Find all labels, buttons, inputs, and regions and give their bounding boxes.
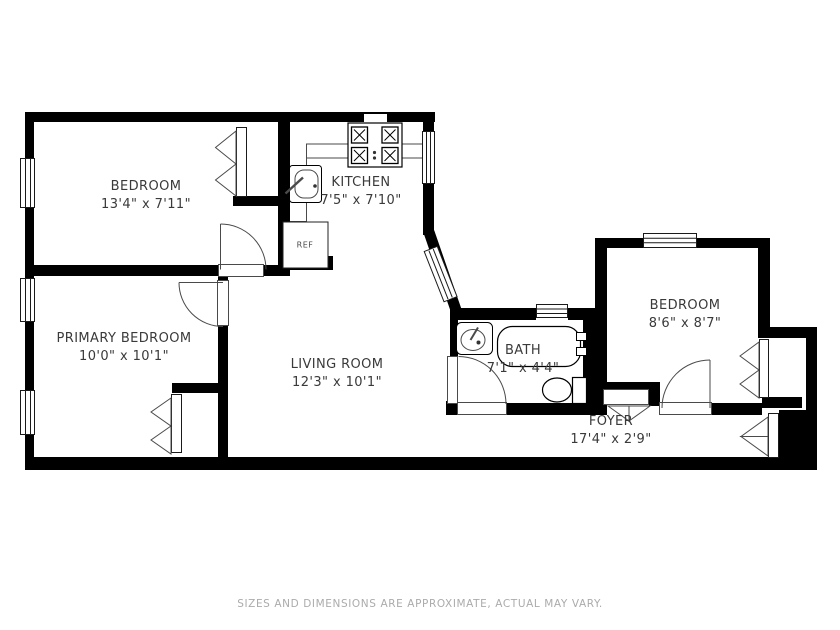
room-dimensions: 17'4" x 2'9" — [570, 431, 651, 449]
stove — [348, 123, 402, 167]
closet-bifold-primary — [151, 395, 182, 455]
room-name: LIVING ROOM — [291, 356, 384, 374]
window-bedroom2-top — [644, 234, 697, 248]
window-bath-top — [537, 305, 568, 318]
room-name: KITCHEN — [320, 174, 401, 192]
door-primary-bedroom — [179, 281, 229, 327]
stove-wall-vent — [364, 114, 387, 122]
room-name: FOYER — [570, 413, 651, 431]
room-name: PRIMARY BEDROOM — [57, 330, 192, 348]
door-bedroom2 — [660, 360, 712, 415]
room-name: BEDROOM — [649, 297, 722, 315]
room-dimensions: 7'1" x 4'4" — [487, 360, 560, 378]
walls — [25, 112, 817, 470]
room-label-bath: BATH 7'1" x 4'4" — [487, 342, 560, 378]
room-dimensions: 10'0" x 10'1" — [57, 348, 192, 366]
entry-door — [741, 414, 779, 458]
closet-bifold-bedroom2 — [740, 340, 769, 399]
room-dimensions: 12'3" x 10'1" — [291, 374, 384, 392]
door-bedroom1 — [219, 224, 267, 277]
room-label-foyer: FOYER 17'4" x 2'9" — [570, 413, 651, 449]
toilet — [543, 378, 587, 404]
room-label-living-room: LIVING ROOM 12'3" x 10'1" — [291, 356, 384, 392]
window-bedroom1-left — [21, 159, 35, 208]
window-angled — [424, 246, 457, 301]
room-name: BATH — [487, 342, 560, 360]
window-kitchen-right — [423, 132, 435, 184]
room-dimensions: 13'4" x 7'11" — [101, 196, 191, 214]
room-label-kitchen: KITCHEN 7'5" x 7'10" — [320, 174, 401, 210]
doors — [151, 128, 779, 458]
disclaimer-text: SIZES AND DIMENSIONS ARE APPROXIMATE, AC… — [237, 598, 603, 610]
room-dimensions: 8'6" x 8'7" — [649, 315, 722, 333]
window-primary-left-2 — [21, 391, 35, 435]
floorplan-page: BEDROOM 13'4" x 7'11" KITCHEN 7'5" x 7'1… — [0, 0, 840, 630]
room-name: BEDROOM — [101, 178, 191, 196]
refrigerator-label: REF — [297, 241, 314, 250]
closet-bifold-bedroom1 — [216, 128, 247, 197]
room-label-bedroom1: BEDROOM 13'4" x 7'11" — [101, 178, 191, 214]
kitchen-sink — [286, 166, 322, 203]
room-dimensions: 7'5" x 7'10" — [320, 192, 401, 210]
room-label-primary-bedroom: PRIMARY BEDROOM 10'0" x 10'1" — [57, 330, 192, 366]
room-label-bedroom2: BEDROOM 8'6" x 8'7" — [649, 297, 722, 333]
window-primary-left-1 — [21, 279, 35, 322]
